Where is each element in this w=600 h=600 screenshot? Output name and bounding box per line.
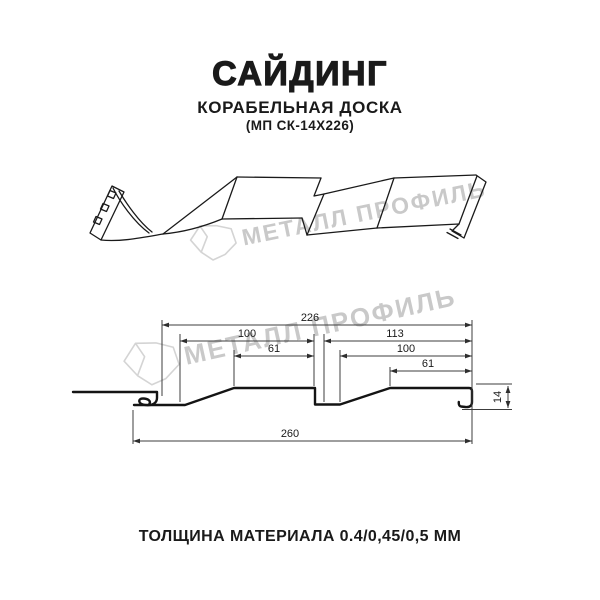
page-root: { "header": { "title": "САЙДИНГ", "subti… bbox=[0, 0, 600, 600]
material-thickness-note: ТОЛЩИНА МАТЕРИАЛА 0.4/0,45/0,5 ММ bbox=[0, 528, 600, 546]
dimension-label-113: 113 bbox=[386, 328, 404, 340]
cross-section-drawing bbox=[73, 388, 472, 407]
dimension-label-61-left: 61 bbox=[268, 343, 280, 355]
dimension-label-100-left: 100 bbox=[238, 328, 256, 340]
dimension-label-226: 226 bbox=[301, 312, 319, 324]
dimension-label-260: 260 bbox=[281, 428, 299, 440]
brand-logo-icon bbox=[121, 335, 182, 389]
technical-drawing-canvas: МЕТАЛЛ ПРОФИЛЬ bbox=[0, 0, 600, 600]
watermark-section: МЕТАЛЛ ПРОФИЛЬ bbox=[121, 273, 460, 389]
dimension-label-14: 14 bbox=[492, 391, 504, 403]
dimension-label-100-right: 100 bbox=[397, 343, 415, 355]
watermark-text: МЕТАЛЛ ПРОФИЛЬ bbox=[240, 175, 489, 250]
watermark-3d: МЕТАЛЛ ПРОФИЛЬ bbox=[188, 168, 489, 263]
watermark-text: МЕТАЛЛ ПРОФИЛЬ bbox=[181, 281, 459, 370]
brand-logo-icon bbox=[188, 220, 238, 264]
dimension-label-61-right: 61 bbox=[422, 358, 434, 370]
